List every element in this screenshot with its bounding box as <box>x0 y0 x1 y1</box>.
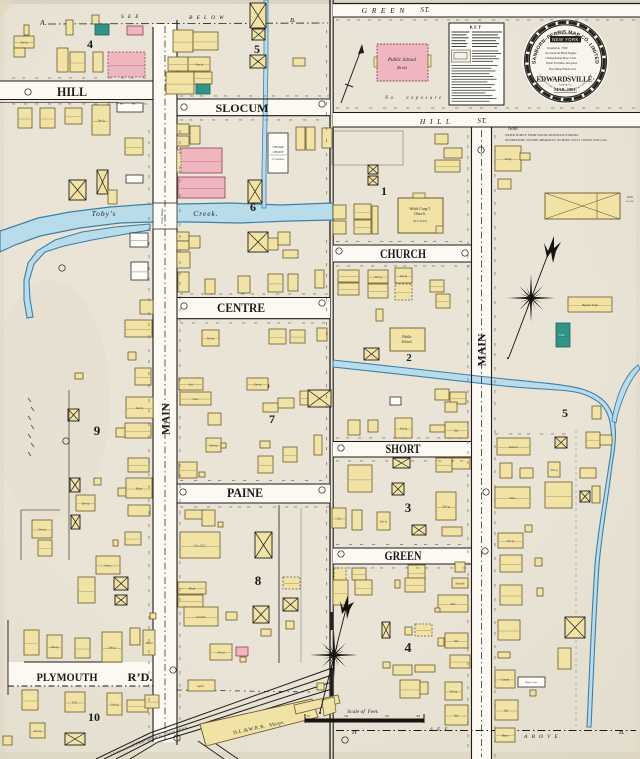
svg-text:B.: B. <box>290 17 296 24</box>
svg-text:100: 100 <box>344 715 349 718</box>
svg-text:7: 7 <box>269 412 275 426</box>
svg-text:Dw’g: Dw’g <box>194 63 202 67</box>
svg-text:Scale of Feet.: Scale of Feet. <box>347 708 378 715</box>
svg-text:Gro. D.G.: Gro. D.G. <box>194 544 207 548</box>
svg-text:Creek.: Creek. <box>193 209 219 218</box>
svg-text:P.O.: P.O. <box>71 701 78 705</box>
svg-text:MAIN: MAIN <box>475 333 489 366</box>
svg-text:Population 3500: Population 3500 <box>547 46 568 50</box>
svg-text:5: 5 <box>562 406 568 420</box>
svg-text:Dw’g: Dw’g <box>19 41 27 45</box>
svg-text:Dw’g: Dw’g <box>96 119 104 123</box>
svg-text:School.: School. <box>402 340 413 344</box>
svg-text:Barn: Barn <box>502 734 509 738</box>
svg-text:S T.: S T. <box>477 117 486 125</box>
svg-text:Water Facilities Not good.: Water Facilities Not good. <box>546 61 578 65</box>
svg-text:4: 4 <box>405 641 412 656</box>
svg-text:1: 1 <box>381 184 387 198</box>
svg-text:Dw’g: Dw’g <box>506 539 514 543</box>
svg-text:CHURCH: CHURCH <box>273 151 284 154</box>
svg-text:(Brick): (Brick) <box>397 66 408 70</box>
svg-text:Dw’g: Dw’g <box>379 520 387 524</box>
svg-text:Sal.: Sal. <box>454 714 459 718</box>
svg-text:10: 10 <box>88 710 100 724</box>
svg-text:S E E: S E E <box>430 727 449 733</box>
svg-text:Dw’g: Dw’g <box>449 690 457 694</box>
svg-text:H I L L: H I L L <box>419 117 452 126</box>
svg-text:NO PRESSURE. NO FIRE APPARATUS: NO PRESSURE. NO FIRE APPARATUS. NO HOSE.… <box>505 138 608 142</box>
svg-text:Dw’g: Dw’g <box>399 274 407 278</box>
svg-text:A.: A. <box>39 18 47 27</box>
svg-text:2: 2 <box>406 352 412 364</box>
svg-text:SLOCUM: SLOCUM <box>216 101 269 115</box>
svg-text:Dw’g: Dw’g <box>206 337 214 341</box>
svg-text:S T.: S T. <box>420 6 429 14</box>
svg-text:Sal.: Sal. <box>189 383 194 387</box>
svg-text:8: 8 <box>255 573 262 588</box>
svg-text:SHORT: SHORT <box>386 441 421 456</box>
svg-text:Note.: Note. <box>507 127 519 132</box>
svg-text:4: 4 <box>87 37 93 51</box>
svg-text:(W’d. Brick): (W’d. Brick) <box>413 220 427 223</box>
svg-text:B.: B. <box>619 729 625 736</box>
svg-text:Welsh Cong’l.: Welsh Cong’l. <box>409 207 430 211</box>
svg-text:Sal.: Sal. <box>454 639 459 643</box>
svg-text:Furn.: Furn. <box>103 564 111 568</box>
svg-text:(W’D BRICK): (W’D BRICK) <box>272 158 285 161</box>
svg-text:H: H <box>351 729 357 736</box>
svg-text:NEW YORK: NEW YORK <box>552 37 579 42</box>
svg-text:WATER SUPPLY: FROM YOUNG MOUNT: WATER SUPPLY: FROM YOUNG MOUNTAIN STREAM… <box>505 133 579 137</box>
svg-text:Public: Public <box>401 335 412 339</box>
svg-text:G R E E N: G R E E N <box>362 6 407 15</box>
svg-text:PAINE: PAINE <box>227 486 263 500</box>
svg-text:Marble: Marble <box>454 582 465 586</box>
svg-text:Repair Shop: Repair Shop <box>581 303 598 307</box>
svg-text:Dw’g: Dw’g <box>441 505 449 509</box>
svg-text:S E E: S E E <box>121 14 140 20</box>
svg-text:Dw’g: Dw’g <box>549 468 557 472</box>
svg-text:Public School: Public School <box>387 58 417 63</box>
svg-text:Dw’g: Dw’g <box>81 502 89 506</box>
svg-text:3: 3 <box>405 500 412 515</box>
svg-text:Dw’g: Dw’g <box>107 646 115 650</box>
svg-text:CENTRE: CENTRE <box>217 301 265 315</box>
svg-text:Dw’g: Dw’g <box>399 427 407 431</box>
svg-text:Dw’g: Dw’g <box>373 275 381 279</box>
svg-text:300: 300 <box>416 715 421 718</box>
svg-text:Toby’s: Toby’s <box>92 209 117 218</box>
svg-text:Dw’g: Dw’g <box>37 528 45 532</box>
svg-text:Shoe: Shoe <box>509 496 516 500</box>
svg-text:Sal.: Sal. <box>504 709 509 713</box>
svg-text:Agric.: Agric. <box>196 684 205 688</box>
svg-text:Co’s Wh.: Co’s Wh. <box>626 200 635 203</box>
svg-text:Genl.S.: Genl.S. <box>196 615 206 619</box>
svg-text:9: 9 <box>94 423 101 438</box>
svg-text:Dw’g: Dw’g <box>253 383 261 387</box>
svg-text:Brick: Brick <box>627 196 633 199</box>
svg-text:CHIL.BAP.: CHIL.BAP. <box>272 146 284 149</box>
svg-text:GREEN: GREEN <box>385 548 422 563</box>
svg-text:Dw’g: Dw’g <box>110 703 118 707</box>
svg-text:Drug: Drug <box>504 157 512 161</box>
svg-text:Plank Bridge: Plank Bridge <box>160 207 164 223</box>
svg-text:Meat: Meat <box>188 587 196 591</box>
svg-text:MAIN: MAIN <box>159 403 173 435</box>
svg-text:Dw’g: Dw’g <box>135 406 143 410</box>
svg-text:A B O V E.: A B O V E. <box>523 734 562 740</box>
svg-text:Gro.: Gro. <box>193 397 199 401</box>
svg-text:5: 5 <box>254 42 260 56</box>
svg-text:KEY: KEY <box>470 25 483 30</box>
svg-text:Candy: Candy <box>501 678 510 682</box>
svg-text:B E L O W: B E L O W <box>189 15 225 21</box>
svg-text:E.ho.: E.ho. <box>558 334 565 337</box>
svg-text:Sal.: Sal. <box>454 429 459 433</box>
svg-text:Dw’g: Dw’g <box>216 651 224 655</box>
svg-text:Church.: Church. <box>414 212 426 216</box>
svg-text:200: 200 <box>385 715 390 718</box>
svg-text:Dw’g: Dw’g <box>33 729 41 733</box>
svg-text:Ch.: Ch. <box>337 517 342 521</box>
svg-text:Sal.: Sal. <box>451 602 456 606</box>
svg-text:Genl.S.: Genl.S. <box>509 445 519 449</box>
svg-text:Dw’g: Dw’g <box>209 444 217 448</box>
svg-text:Meat: Meat <box>135 487 143 491</box>
svg-text:CHURCH: CHURCH <box>380 246 426 261</box>
svg-text:Prevailing Winds west: Prevailing Winds west <box>549 67 576 71</box>
svg-text:(115 Broadway): (115 Broadway) <box>557 33 575 36</box>
svg-text:An Steam & Hand Engine: An Steam & Hand Engine <box>545 51 577 55</box>
svg-text:HILL: HILL <box>57 85 87 99</box>
svg-text:Wagon Scale: Wagon Scale <box>525 681 537 684</box>
svg-text:2 Independent Hose Carts: 2 Independent Hose Carts <box>545 56 577 60</box>
svg-text:PLYMOUTH: PLYMOUTH <box>37 670 99 684</box>
svg-text:Dw’g: Dw’g <box>50 645 58 649</box>
